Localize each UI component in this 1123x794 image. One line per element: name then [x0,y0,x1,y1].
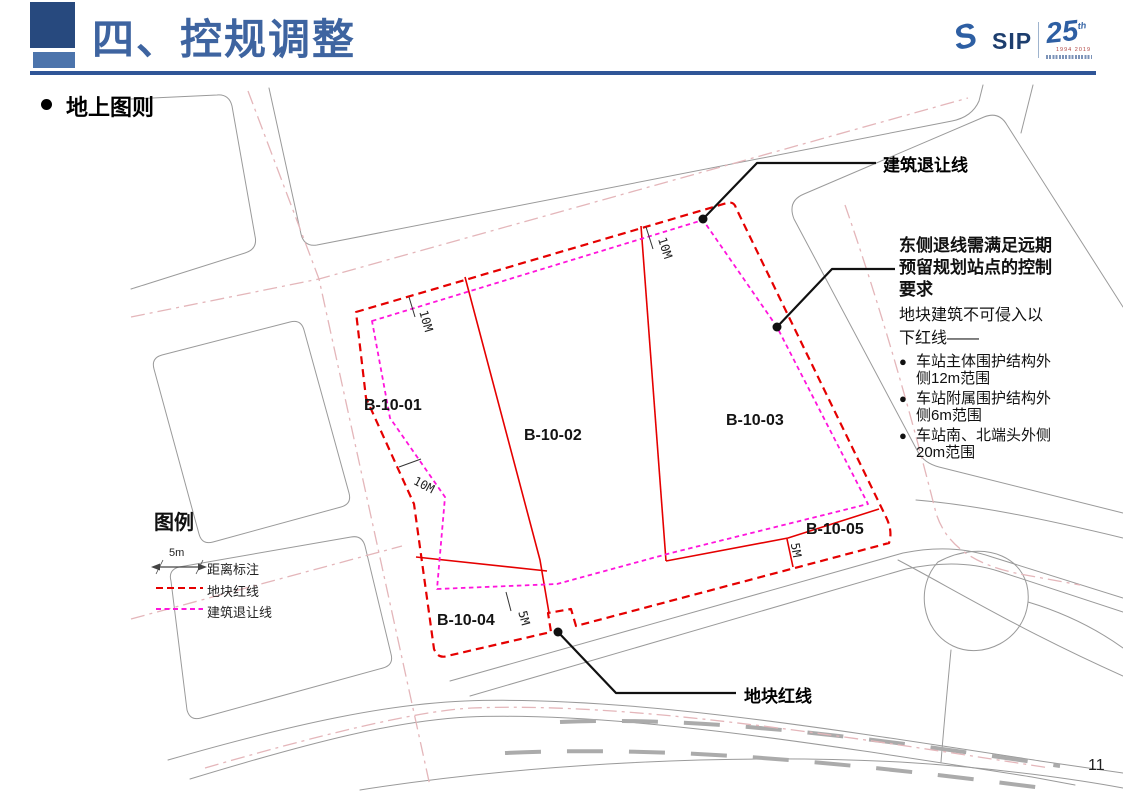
logo-years: 1994 2019 [1056,47,1091,53]
logo-swoosh-icon: S [950,16,981,59]
road-top-right-edge [1021,85,1033,133]
east-note-body: 地块建筑不可侵入以下红线—— [899,304,1051,350]
block-lower-left [170,537,391,719]
logo-anniversary: 25th [1044,14,1088,51]
logo-anniversary-number: 25 [1044,15,1079,50]
legend-item-distance: 距离标注 [207,559,259,578]
parcel-redline-boundary [356,203,890,657]
parcel-label-b1003: B-10-03 [726,412,784,430]
road-minor-south-1 [450,549,1123,681]
redline-callout-label: 地块红线 [744,682,812,707]
dim-tick-4 [506,592,511,611]
ramp-east [1028,602,1123,648]
section-title: 地上图则 [66,90,154,122]
east-note-bullet: ● 车站南、北端头外侧20m范围 [899,427,1074,461]
setback-outline [372,220,868,589]
east-note-bullet-text: 车站南、北端头外侧20m范围 [916,427,1052,461]
logo-subtext-bar [1046,55,1092,59]
sip-logo: S SIP 25th 1994 2019 [952,16,1112,64]
parcel-divider-v1 [465,277,549,613]
block-top-left [131,95,256,289]
east-note-bullet: ● 车站附属围护结构外侧6m范围 [899,390,1074,424]
leader-setback [703,163,876,219]
legend-item-redline: 地块红线 [207,581,259,600]
header-accent-bar [33,52,75,68]
leader-dot-setback [699,215,708,224]
logo-brand: SIP [992,28,1032,55]
road-edge-north [269,85,983,245]
logo-anniversary-suffix: th [1077,20,1086,31]
lane-dashes-2 [505,751,1058,790]
east-note-title: 东侧退线需满足远期预留规划站点的控制要求 [899,235,1063,301]
parcel-label-b1001: B-10-01 [364,397,422,415]
page-title: 四、控规调整 [92,6,356,67]
header-accent-square [30,2,75,48]
legend-title: 图例 [154,506,194,535]
centerline-north-road [131,98,968,317]
east-note: 东侧退线需满足远期预留规划站点的控制要求 地块建筑不可侵入以下红线—— ● 车站… [899,235,1074,461]
section-bullet-icon [41,99,52,110]
logo-divider [1038,22,1039,58]
east-note-bullet-text: 车站主体围护结构外侧12m范围 [916,353,1052,387]
bullet-dot-icon: ● [899,353,916,387]
centerline-major-road [205,707,1050,768]
legend-item-setback: 建筑退让线 [207,602,272,621]
page-number: 11 [1088,757,1105,775]
bullet-dot-icon: ● [899,427,916,461]
parcel-label-b1002: B-10-02 [524,427,582,445]
centerline-west-road [248,91,430,786]
ramp-diagonal [898,560,1123,676]
dim-tick-1 [409,297,415,317]
parcel-divider-h2 [416,557,547,571]
setback-callout-label: 建筑退让线 [883,151,968,176]
legend-scale-value: 5m [169,547,184,559]
dim-label-5m-b: 5M [788,542,804,559]
leader-dot-redline [554,628,563,637]
east-note-bullet-text: 车站附属围护结构外侧6m范围 [916,390,1052,424]
parcel-divider-v2 [641,226,666,561]
header-rule [30,71,1096,75]
parcel-label-b1005: B-10-05 [806,521,864,539]
ramp-stem [941,650,951,762]
parcel-label-b1004: B-10-04 [437,612,495,630]
bullet-dot-icon: ● [899,390,916,424]
east-note-bullet: ● 车站主体围护结构外侧12m范围 [899,353,1074,387]
dim-tick-2 [646,227,653,249]
slide: 四、控规调整 S SIP 25th 1994 2019 地上图则 B-10-01… [0,0,1123,794]
leader-dot-east-note [773,323,782,332]
road-minor-south-2 [470,564,1123,696]
dim-tick-3 [399,459,421,467]
